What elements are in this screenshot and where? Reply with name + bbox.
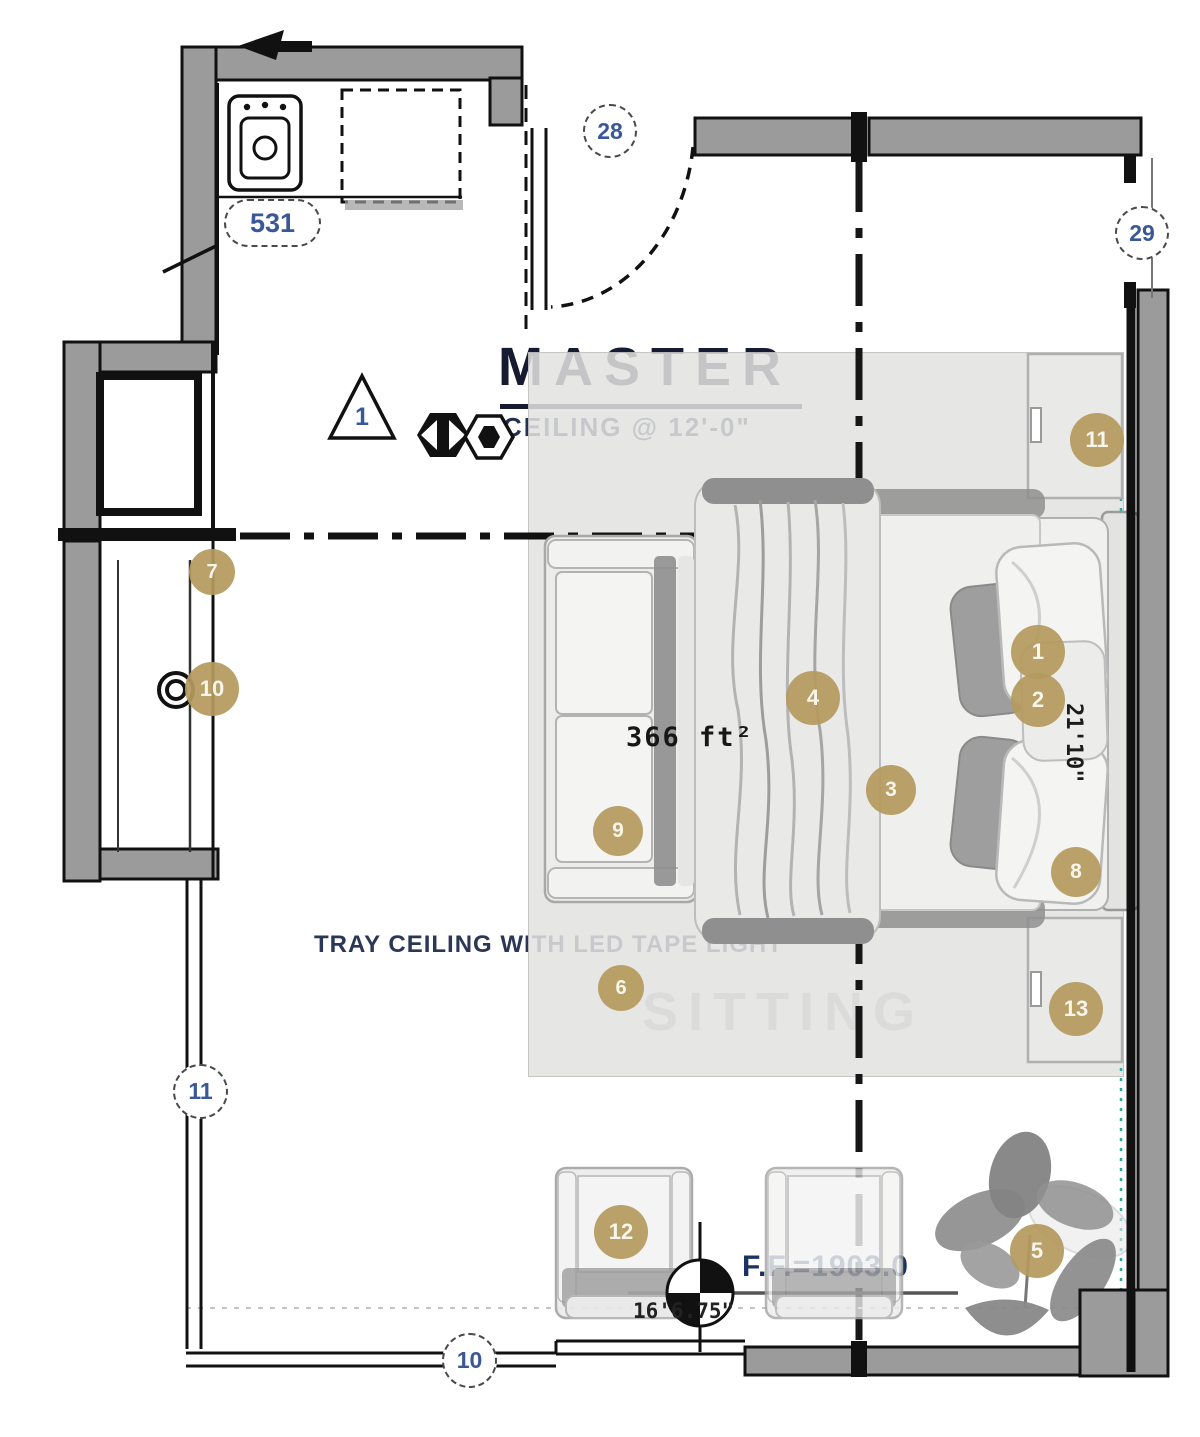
dimension-horizontal: 16'6.75" xyxy=(633,1299,734,1323)
sink xyxy=(229,96,301,190)
item-marker-5[interactable]: 5 xyxy=(1010,1224,1064,1278)
bay-mid-wall xyxy=(58,528,236,541)
item-marker-2[interactable]: 2 xyxy=(1011,673,1065,727)
item-marker-4[interactable]: 4 xyxy=(786,671,840,725)
item-marker-7[interactable]: 7 xyxy=(189,549,235,595)
item-marker-1[interactable]: 1 xyxy=(1011,625,1065,679)
window-tag-11[interactable]: 11 xyxy=(173,1064,228,1119)
keynote-tag-531[interactable]: 531 xyxy=(224,199,321,247)
spot-elevation-icon xyxy=(667,1222,733,1352)
appliance-dashed xyxy=(342,90,460,202)
dimension-vertical: 21'10" xyxy=(1061,703,1086,782)
section-line-wall-cap-top xyxy=(851,112,867,162)
item-marker-8[interactable]: 8 xyxy=(1051,847,1101,897)
walls xyxy=(64,47,1168,1376)
item-marker-3[interactable]: 3 xyxy=(866,765,916,815)
fastener-hexagon-icon xyxy=(465,416,513,458)
item-marker-6[interactable]: 6 xyxy=(598,965,644,1011)
window-tag-29[interactable]: 29 xyxy=(1115,206,1169,260)
item-marker-13[interactable]: 13 xyxy=(1049,982,1103,1036)
right-wall-jamb-top xyxy=(1124,155,1136,183)
item-marker-11[interactable]: 11 xyxy=(1070,413,1124,467)
door-swing-arc xyxy=(551,147,693,307)
item-marker-10[interactable]: 10 xyxy=(185,662,239,716)
room-area-label: 366 ft² xyxy=(626,722,754,753)
window-tag-10[interactable]: 10 xyxy=(442,1333,497,1388)
door-tag-28[interactable]: 28 xyxy=(583,104,637,158)
item-marker-9[interactable]: 9 xyxy=(593,806,643,856)
bay-window-box xyxy=(100,376,198,512)
floor-plan: MASTER CEILING @ 12'-0" TRAY CEILING WIT… xyxy=(0,0,1200,1437)
keynote-hexagon-icon xyxy=(417,413,469,457)
section-line-wall-cap-bottom xyxy=(851,1341,867,1377)
item-marker-12[interactable]: 12 xyxy=(594,1205,648,1259)
revision-number: 1 xyxy=(348,403,376,432)
